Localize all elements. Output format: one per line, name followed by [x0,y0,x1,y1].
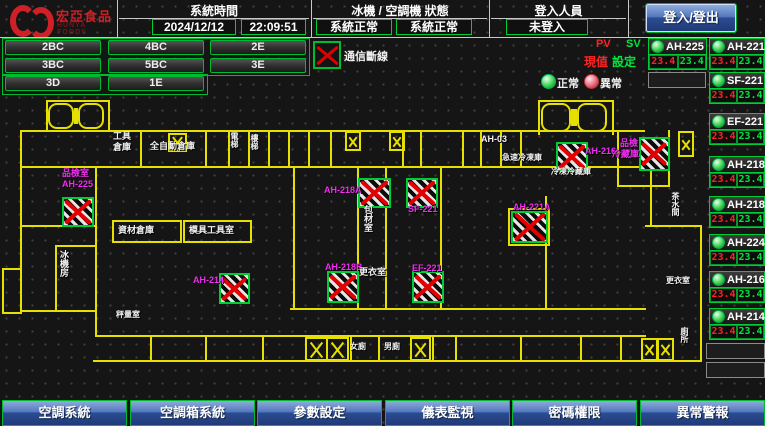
sv-value: 23.4 [737,55,764,69]
sv-value: 23.4 [737,89,764,103]
unit-name: AH-218B [727,199,765,211]
sv-value: 23.4 [737,173,764,187]
unit-name: EF-221 [727,116,763,128]
sv-value: 23.4 [737,213,764,227]
unit-panel: AH-22523.423.4AH-221A23.423.4SF-22123.42… [0,0,765,426]
unit-values-AH-216: 23.423.4 [709,287,765,303]
sv-value: 23.4 [678,55,707,69]
status-led-icon [712,236,725,249]
pv-value: 23.4 [710,325,737,339]
unit-AH-221A[interactable]: AH-221A [709,38,765,55]
footer-button-參數設定[interactable]: 參數設定 [257,400,382,426]
unit-AH-218B[interactable]: AH-218B [709,196,765,213]
status-led-icon [712,40,725,53]
unit-name: AH-216 [727,274,765,286]
unit-AH-216[interactable]: AH-216 [709,271,765,288]
footer-button-密碼權限[interactable]: 密碼權限 [512,400,637,426]
unit-AH-218A[interactable]: AH-218A [709,156,765,173]
unit-values-SF-221: 23.423.4 [709,88,765,104]
unit-name: AH-225 [666,41,704,53]
sv-value: 23.4 [737,288,764,302]
sv-value: 23.4 [737,325,764,339]
pv-value: 23.4 [710,55,737,69]
empty-slot [706,362,765,378]
unit-values-AH-224: 23.423.4 [709,250,765,266]
sv-value: 23.4 [737,251,764,265]
unit-values-AH-218B: 23.423.4 [709,212,765,228]
unit-AH-225[interactable]: AH-225 [648,38,707,55]
status-led-icon [712,198,725,211]
pv-value: 23.4 [710,130,737,144]
hmi-screen: 宏亞食品 HUNYA FOODS 系統時間 2024/12/12 22:09:5… [0,0,765,426]
pv-value: 23.4 [649,55,678,69]
footer-button-異常警報[interactable]: 異常警報 [640,400,765,426]
unit-name: AH-218A [727,159,765,171]
footer-nav-bar: 空調系統空調箱系統參數設定儀表監視密碼權限異常警報 [0,398,765,426]
footer-button-儀表監視[interactable]: 儀表監視 [385,400,510,426]
unit-name: SF-221 [727,75,763,87]
footer-button-空調箱系統[interactable]: 空調箱系統 [130,400,255,426]
unit-values-AH-214: 23.423.4 [709,324,765,340]
pv-value: 23.4 [710,173,737,187]
unit-SF-221[interactable]: SF-221 [709,72,765,89]
pv-value: 23.4 [710,213,737,227]
empty-slot [706,343,765,359]
status-led-icon [712,74,725,87]
sv-value: 23.4 [737,130,764,144]
pv-value: 23.4 [710,89,737,103]
pv-value: 23.4 [710,288,737,302]
unit-AH-214[interactable]: AH-214 [709,308,765,325]
unit-values-AH-218A: 23.423.4 [709,172,765,188]
unit-name: AH-224 [727,237,765,249]
unit-name: AH-214 [727,311,765,323]
status-led-icon [651,40,664,53]
unit-values-AH-225: 23.423.4 [648,54,707,70]
unit-name: AH-221A [727,41,765,53]
pv-value: 23.4 [710,251,737,265]
status-led-icon [712,310,725,323]
footer-button-空調系統[interactable]: 空調系統 [2,400,127,426]
status-led-icon [712,273,725,286]
unit-EF-221[interactable]: EF-221 [709,113,765,130]
unit-values-EF-221: 23.423.4 [709,129,765,145]
status-led-icon [712,115,725,128]
status-led-icon [712,158,725,171]
empty-slot [648,72,706,88]
unit-values-AH-221A: 23.423.4 [709,54,765,70]
unit-AH-224[interactable]: AH-224 [709,234,765,251]
